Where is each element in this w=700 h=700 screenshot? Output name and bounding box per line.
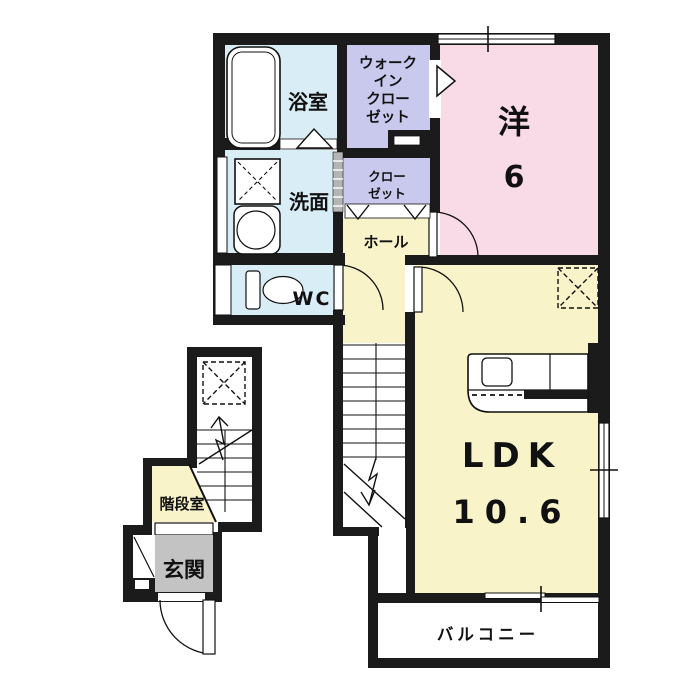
balcony-window-pane-right — [541, 597, 599, 603]
wall-entrance-right — [213, 532, 222, 602]
kitchen-sink — [482, 358, 512, 386]
wall-stairroom-left — [143, 458, 152, 535]
wall-ldk-left-lower — [406, 528, 415, 593]
entrance-door-opening — [158, 593, 205, 601]
bathtub — [227, 47, 280, 148]
balcony-label: バルコニー — [437, 625, 539, 644]
wall-stairs-right — [405, 312, 415, 528]
wall-wic-bottom — [337, 148, 430, 158]
wic-label-4: ゼット — [366, 108, 410, 126]
closet-label-1: クロー — [368, 169, 406, 184]
wall-stairwell-top — [187, 347, 262, 357]
wall-stairwell-left — [187, 347, 197, 467]
western-room-label: 洋 — [498, 103, 530, 141]
western-room-size: 6 — [504, 160, 525, 195]
hall-label: ホール — [363, 233, 408, 251]
wall-washroom-wc — [213, 253, 345, 265]
wall-hall-left-upper — [333, 212, 343, 265]
window-washroom — [217, 157, 227, 253]
wall-kitchen-pillar — [588, 343, 610, 413]
entrance-door-leaf — [203, 600, 215, 654]
closet-label-2: ゼット — [368, 186, 406, 201]
wall-wc-bottom — [213, 315, 345, 325]
wc-label: WC — [293, 288, 332, 310]
ldk-label: LDK — [462, 436, 562, 476]
wall-balcony-left — [368, 528, 378, 668]
balcony-window-pane-left — [485, 593, 545, 599]
ldk-floor — [415, 265, 598, 593]
wall-entrance-left — [123, 525, 133, 602]
wall-stairs-left — [333, 310, 343, 528]
bathroom-label: 浴室 — [288, 90, 328, 114]
entrance-label: 玄関 — [163, 558, 205, 582]
wall-stairwell-bottom — [218, 522, 262, 532]
washroom-label: 洗面 — [289, 190, 329, 214]
wic-label-3: クロー — [366, 91, 410, 108]
entrance-niche — [135, 580, 149, 589]
wall-stairwell-right — [252, 347, 262, 532]
window-wc — [215, 265, 231, 315]
floor-plan: 浴室 洗面 WC ウォーク イン クロー ゼット クロー ゼット 洋 6 ホール… — [0, 0, 700, 700]
wic-label-1: ウォーク — [359, 55, 417, 72]
ldk-door-leaf — [414, 267, 422, 312]
western-room-door-leaf — [429, 212, 437, 257]
ldk-size: 10.6 — [453, 493, 572, 531]
wall-balcony-bottom — [368, 658, 610, 668]
kitchen-back-bar — [524, 390, 588, 399]
washbasin-bowl — [237, 211, 275, 249]
wall-bath-wic — [337, 45, 347, 148]
entrance-step — [155, 523, 213, 535]
toilet-tank — [246, 271, 260, 309]
wic-label-2: イン — [374, 74, 403, 90]
stair-room-label: 階段室 — [159, 495, 204, 513]
wc-door-leaf — [334, 265, 343, 310]
wic-pocket-slot — [394, 136, 420, 145]
